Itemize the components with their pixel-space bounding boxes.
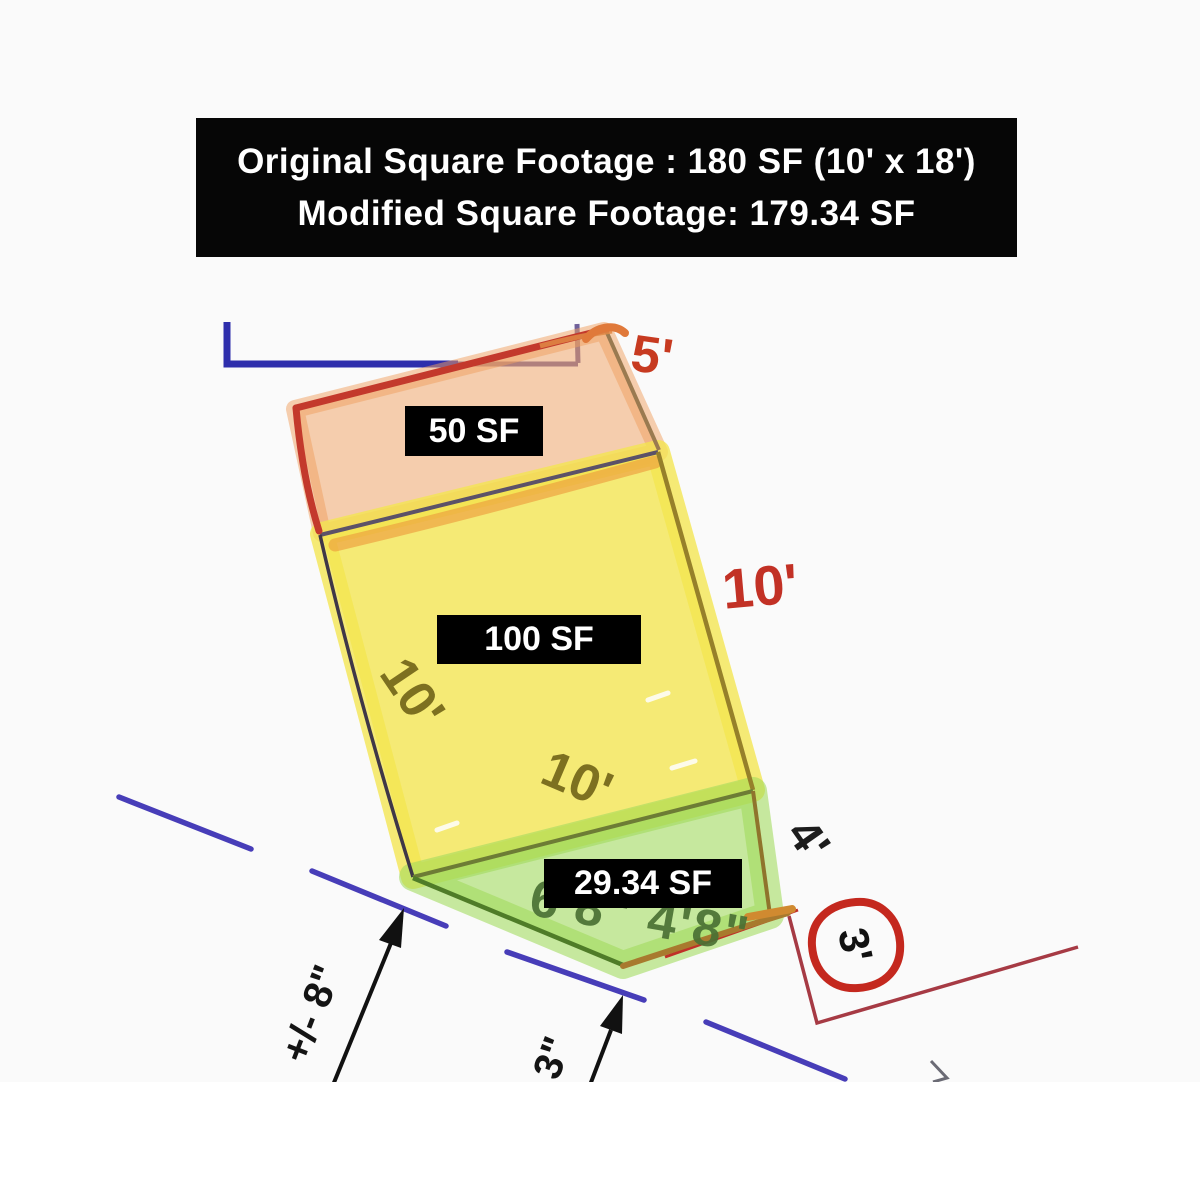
- label-100sf: 100 SF: [437, 615, 641, 664]
- blue-corner-line: [227, 322, 458, 364]
- cursor-arrow: [931, 1061, 947, 1082]
- screenshot-canvas: Original Square Footage : 180 SF (10' x …: [0, 0, 1200, 1200]
- header-banner: Original Square Footage : 180 SF (10' x …: [196, 118, 1017, 257]
- dim-top-5ft: 5': [627, 323, 676, 388]
- modified-sf-line: Modified Square Footage: 179.34 SF: [298, 188, 916, 240]
- label-50sf: 50 SF: [405, 406, 543, 456]
- original-sf-line: Original Square Footage : 180 SF (10' x …: [237, 136, 976, 188]
- label-2934sf: 29.34 SF: [544, 859, 742, 908]
- arrow-shaft: [333, 943, 391, 1082]
- dim-arrow-8in: [333, 908, 404, 1082]
- setback-seg-4: [706, 1022, 845, 1079]
- dim-right-10ft: 10': [720, 550, 801, 621]
- arrow-head: [379, 908, 404, 948]
- arrow-shaft: [590, 1030, 611, 1082]
- setback-seg-1: [119, 797, 251, 849]
- arrow-head: [600, 995, 623, 1034]
- floorplan-photo: Original Square Footage : 180 SF (10' x …: [0, 0, 1200, 1082]
- dim-arrow-3in: [590, 995, 623, 1082]
